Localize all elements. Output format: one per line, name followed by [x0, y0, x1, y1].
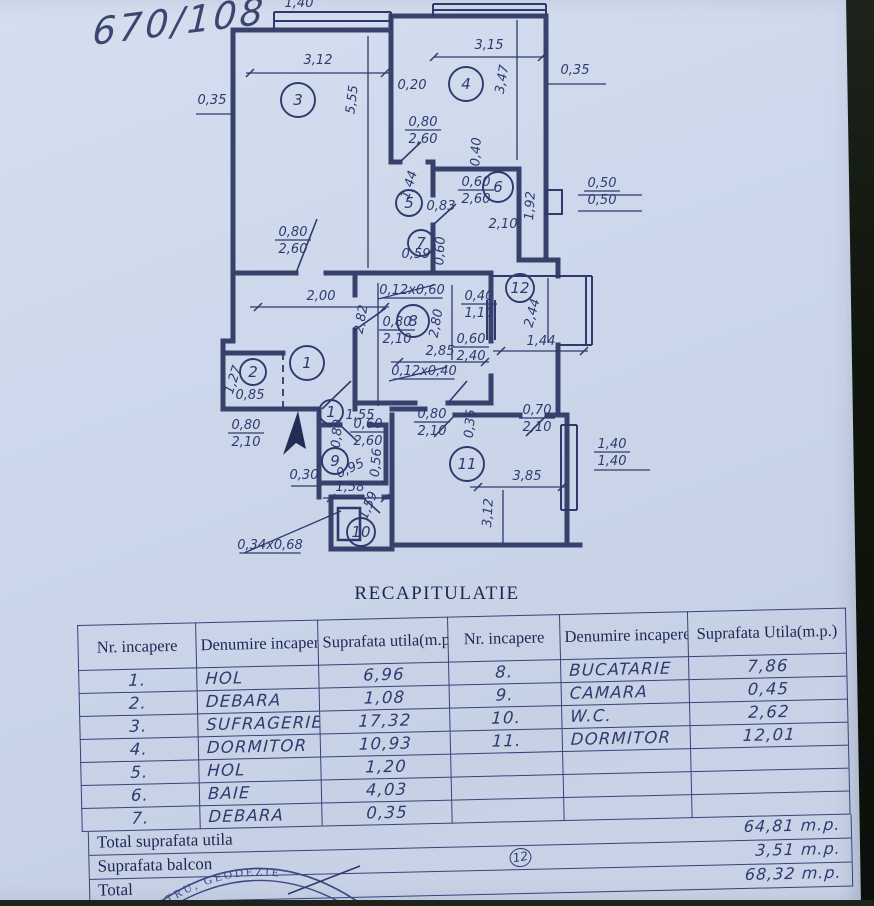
- recap-cell-nr: 3.: [80, 714, 198, 740]
- recap-cell-area: 17,32: [320, 708, 450, 734]
- recap-cell-area: 1,08: [319, 685, 449, 711]
- col-header-name-right: Denumire incapere: [559, 612, 688, 660]
- svg-text:11: 11: [457, 455, 476, 473]
- svg-text:0,20: 0,20: [398, 78, 427, 93]
- plan-dimension-label: 0,802,60: [275, 225, 311, 257]
- recap-title: RECAPITULATIE: [0, 583, 874, 605]
- svg-text:2,60: 2,60: [279, 242, 308, 257]
- col-header-area-right: Suprafata Utila(m.p.): [687, 608, 846, 657]
- svg-text:0,50: 0,50: [588, 176, 617, 191]
- plan-dimension-label: 3,12: [304, 53, 333, 68]
- svg-text:0,60: 0,60: [432, 236, 448, 266]
- room-number-circle: 10: [347, 518, 375, 546]
- svg-text:2,40: 2,40: [457, 349, 486, 364]
- recap-cell-name2: [563, 749, 691, 775]
- col-header-name-left: Denumire incapere: [196, 620, 319, 668]
- col-header-nr-right: Nr. incapere: [448, 615, 561, 663]
- svg-text:TRU, GEODEZIE: TRU, GEODEZIE: [164, 866, 282, 900]
- svg-text:0,12x0,40: 0,12x0,40: [391, 364, 457, 379]
- recap-cell-area: 1,20: [321, 754, 451, 780]
- plan-dimension-label: 1,40: [285, 0, 314, 11]
- svg-text:2,82: 2,82: [352, 304, 372, 335]
- svg-text:2,60: 2,60: [354, 434, 383, 449]
- recap-cell-nr: 5.: [81, 760, 199, 786]
- recap-cell-nr2: 11.: [450, 729, 562, 755]
- recap-cell-name2: BUCATARIE: [561, 657, 689, 683]
- svg-text:1,10: 1,10: [465, 306, 494, 321]
- svg-text:1,92: 1,92: [522, 191, 539, 221]
- plan-dimension-label: 3,15: [475, 38, 504, 53]
- svg-text:2,00: 2,00: [307, 289, 336, 304]
- svg-text:9: 9: [330, 452, 340, 470]
- plan-dimension-label: 1,401,40: [594, 437, 630, 469]
- plan-dimension-label: 2,00: [307, 289, 336, 304]
- svg-text:0,83: 0,83: [427, 199, 456, 214]
- svg-text:3,15: 3,15: [475, 38, 504, 53]
- room-number-circle: 1: [319, 400, 343, 424]
- recap-cell-area: 4,03: [321, 777, 451, 803]
- svg-text:0,80: 0,80: [279, 225, 308, 240]
- plan-dimension-label: 1,92: [522, 191, 539, 221]
- plan-dimension-label: 0,40: [468, 137, 484, 167]
- recap-cell-area: 6,96: [319, 662, 449, 688]
- svg-text:5,55: 5,55: [343, 84, 361, 115]
- recap-cell-name: DEBARA: [197, 688, 319, 714]
- recap-table: Nr. incapere Denumire incapere Suprafata…: [77, 608, 850, 832]
- plan-dimension-label: 0,702,10: [519, 403, 555, 435]
- plan-dimension-label: 0,20: [398, 78, 427, 93]
- svg-text:12: 12: [510, 279, 529, 297]
- svg-text:1,58: 1,58: [336, 480, 365, 495]
- stamp-arc-text: TRU, GEODEZIE: [164, 866, 282, 900]
- recap-cell-name2: [563, 772, 691, 798]
- plan-dimension-label: 3,85: [513, 469, 542, 484]
- recap-cell-name: HOL: [199, 757, 321, 783]
- scanned-paper: 670/108: [0, 0, 874, 900]
- recap-cell-name: BAIE: [199, 780, 321, 806]
- svg-text:1,40: 1,40: [598, 454, 627, 469]
- svg-text:0,34x0,68: 0,34x0,68: [237, 538, 303, 553]
- stamp-signature-line: [288, 866, 360, 894]
- svg-text:2,60: 2,60: [409, 132, 438, 147]
- svg-text:1: 1: [326, 403, 336, 421]
- svg-text:0,56: 0,56: [368, 448, 385, 478]
- svg-text:0,40: 0,40: [468, 137, 484, 167]
- recap-cell-nr: 6.: [81, 783, 199, 809]
- recap-cell-nr: 4.: [80, 737, 198, 763]
- plan-dimension-label: 5,55: [343, 84, 361, 115]
- svg-text:2,10: 2,10: [383, 332, 412, 347]
- plan-dimension-label: 0,802,10: [228, 418, 264, 450]
- svg-text:2,10: 2,10: [523, 420, 552, 435]
- room-number-circle: 11: [450, 447, 484, 481]
- plan-dimension-label: 2,82: [352, 304, 372, 335]
- svg-text:0,80: 0,80: [409, 115, 438, 130]
- svg-text:1,40: 1,40: [285, 0, 314, 11]
- plan-dimension-label: 2,10: [489, 217, 518, 232]
- recap-section: RECAPITULATIE Nr. incapere Denumire inca…: [0, 583, 874, 904]
- recap-cell-nr: 2.: [79, 691, 197, 717]
- svg-text:3,12: 3,12: [480, 498, 497, 528]
- svg-text:3,12: 3,12: [304, 53, 333, 68]
- room-number-circle: 12: [506, 274, 534, 302]
- room-number-circle: 1: [290, 346, 324, 380]
- svg-text:0,50: 0,50: [588, 193, 617, 208]
- room-number-circle: 3: [281, 83, 315, 117]
- recap-cell-nr2: [451, 775, 563, 801]
- total-label: Total: [98, 880, 133, 901]
- svg-text:8: 8: [408, 312, 418, 330]
- svg-text:1: 1: [302, 354, 312, 372]
- col-header-nr-left: Nr. incapere: [78, 623, 197, 671]
- total-value: 68,32 m.p.: [744, 863, 842, 884]
- plan-dimension-label: 3,47: [493, 63, 513, 95]
- plan-dimension-label: 0,500,50: [584, 176, 620, 208]
- svg-text:0,85: 0,85: [236, 388, 265, 403]
- north-arrow: [283, 411, 306, 455]
- svg-text:2,85: 2,85: [426, 344, 455, 359]
- round-stamp: TRU, GEODEZIE: [140, 858, 380, 900]
- svg-text:0,35: 0,35: [462, 409, 479, 439]
- recap-cell-name: DORMITOR: [198, 734, 320, 760]
- svg-text:1,44: 1,44: [527, 334, 556, 349]
- floor-plan-drawing: 1,403,125,550,353,153,470,350,200,802,60…: [0, 0, 874, 583]
- total-balcon-value: 3,51 m.p.: [755, 839, 842, 860]
- svg-text:2,10: 2,10: [418, 424, 447, 439]
- room-number-circle: 5: [396, 190, 422, 216]
- svg-text:0,80: 0,80: [232, 418, 261, 433]
- plan-dimension-label: 0,30: [290, 468, 319, 483]
- plan-dimension-label: 0,35: [198, 93, 227, 108]
- recap-cell-nr2: [451, 752, 563, 778]
- recap-cell-name2: [564, 795, 692, 821]
- plan-dimension-label: 0,35: [462, 409, 479, 439]
- svg-text:0,80: 0,80: [418, 407, 447, 422]
- plan-dimension-label: 0,12x0,60: [379, 283, 445, 298]
- svg-text:10: 10: [351, 523, 370, 541]
- recap-cell-nr2: 9.: [449, 683, 561, 709]
- svg-text:2,60: 2,60: [462, 192, 491, 207]
- balcony-room-badge: 12: [508, 846, 533, 868]
- col-header-area-left: Suprafata utila(m.p.): [318, 617, 449, 665]
- recap-cell-name2: DORMITOR: [562, 726, 690, 752]
- total-utila-label: Total suprafata utila: [97, 830, 233, 853]
- plan-dimension-label: 0,83: [427, 199, 456, 214]
- svg-text:7: 7: [416, 234, 426, 252]
- total-utila-value: 64,81 m.p.: [743, 815, 841, 836]
- recap-cell-area: 10,93: [320, 731, 450, 757]
- svg-text:3,85: 3,85: [513, 469, 542, 484]
- plan-dimension-label: 0,35: [561, 63, 590, 78]
- plan-dimension-label: 0,85: [236, 388, 265, 403]
- svg-text:0,35: 0,35: [198, 93, 227, 108]
- plan-dimension-label: 3,12: [480, 498, 497, 528]
- svg-text:0,40: 0,40: [465, 289, 494, 304]
- svg-text:1,40: 1,40: [598, 437, 627, 452]
- plan-dimension-label: 2,85: [426, 344, 455, 359]
- recap-cell-nr2: 8.: [449, 660, 561, 686]
- recap-cell-nr2: 10.: [450, 706, 562, 732]
- svg-text:0,60: 0,60: [457, 332, 486, 347]
- recap-cell-area2: [692, 791, 850, 818]
- plan-dimension-label: 0,602,60: [350, 417, 386, 449]
- plan-dimension-label: 0,34x0,68: [237, 538, 303, 553]
- plan-dimension-label: 0,56: [368, 448, 385, 478]
- recap-cell-nr: 1.: [79, 668, 197, 694]
- plan-dimension-label: 1,44: [527, 334, 556, 349]
- plan-dimension-label: 0,802,10: [414, 407, 450, 439]
- plan-dimension-label: 0,602,60: [458, 175, 494, 207]
- svg-text:0,30: 0,30: [290, 468, 319, 483]
- svg-text:0,60: 0,60: [354, 417, 383, 432]
- svg-text:2,10: 2,10: [489, 217, 518, 232]
- svg-text:3: 3: [293, 91, 303, 109]
- recap-cell-nr2: [452, 798, 564, 824]
- svg-text:5: 5: [404, 194, 414, 212]
- svg-text:4: 4: [461, 75, 471, 93]
- recap-cell-name: DEBARA: [200, 803, 322, 829]
- plan-dimension-label: 0,60: [432, 236, 448, 266]
- svg-text:0,12x0,60: 0,12x0,60: [379, 283, 445, 298]
- svg-text:2: 2: [248, 363, 258, 381]
- recap-cell-name2: CAMARA: [561, 680, 689, 706]
- plan-dimension-label: 0,602,40: [453, 332, 489, 364]
- recap-cell-area: 0,35: [322, 800, 452, 826]
- recap-cell-name: HOL: [197, 665, 319, 691]
- recap-cell-name2: W.C.: [562, 703, 690, 729]
- recap-cell-name: SUFRAGERIE: [198, 711, 320, 737]
- svg-text:2,10: 2,10: [232, 435, 261, 450]
- svg-text:6: 6: [493, 178, 503, 196]
- plan-dimension-label: 0,12x0,40: [391, 364, 457, 379]
- svg-text:0,70: 0,70: [523, 403, 552, 418]
- room-number-circle: 4: [449, 67, 483, 101]
- plan-dimension-label: 1,58: [336, 480, 365, 495]
- svg-text:0,35: 0,35: [561, 63, 590, 78]
- plan-dimension-label: 0,802,60: [405, 115, 441, 147]
- recap-cell-nr: 7.: [82, 806, 200, 832]
- svg-text:3,47: 3,47: [493, 63, 513, 95]
